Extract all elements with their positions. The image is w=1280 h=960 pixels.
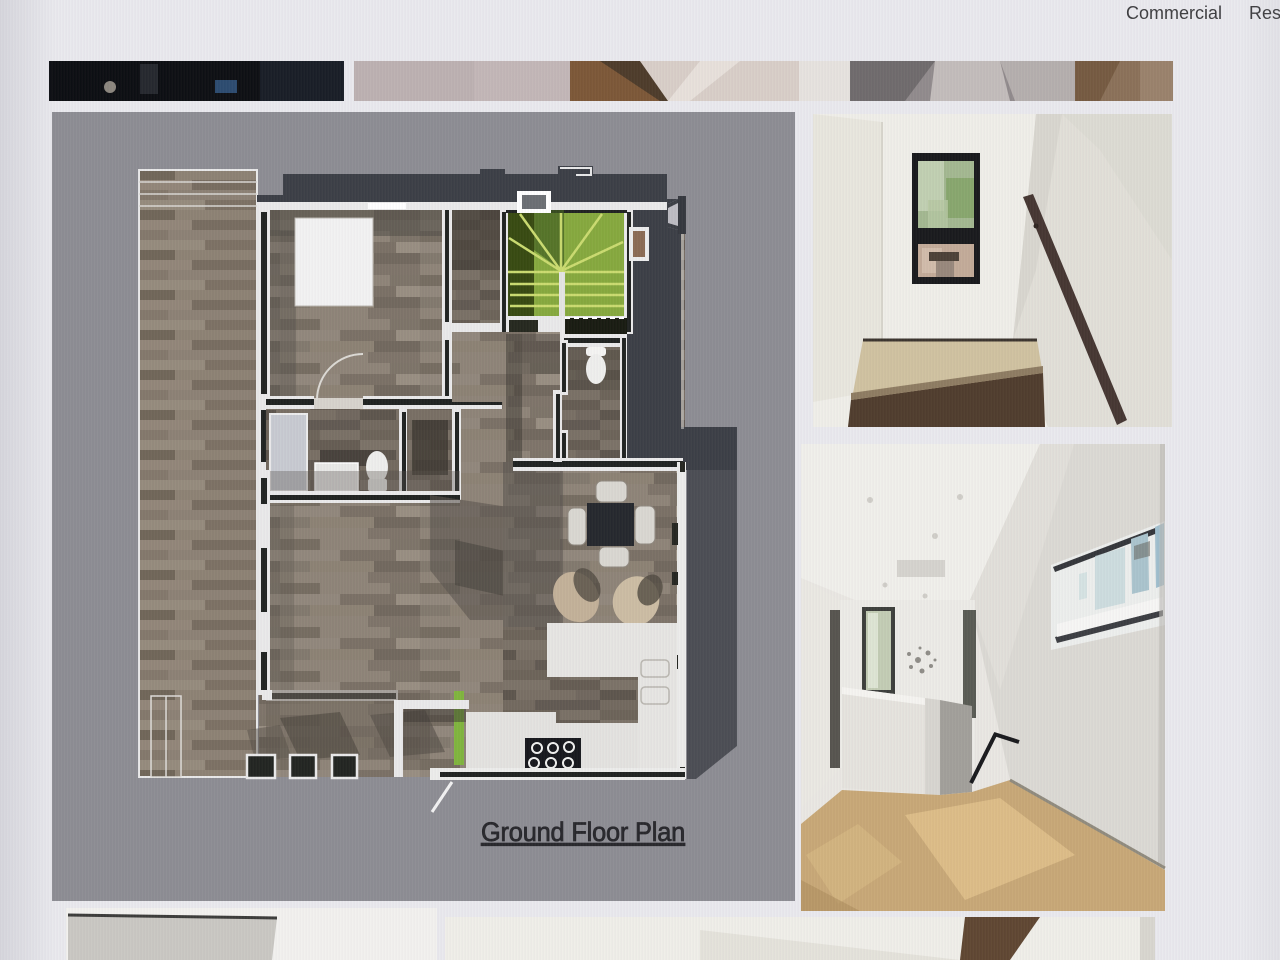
svg-text:Commercial: Commercial [1126,3,1222,23]
svg-text:Res: Res [1249,3,1280,23]
svg-text:Ground Floor Plan: Ground Floor Plan [481,816,685,847]
